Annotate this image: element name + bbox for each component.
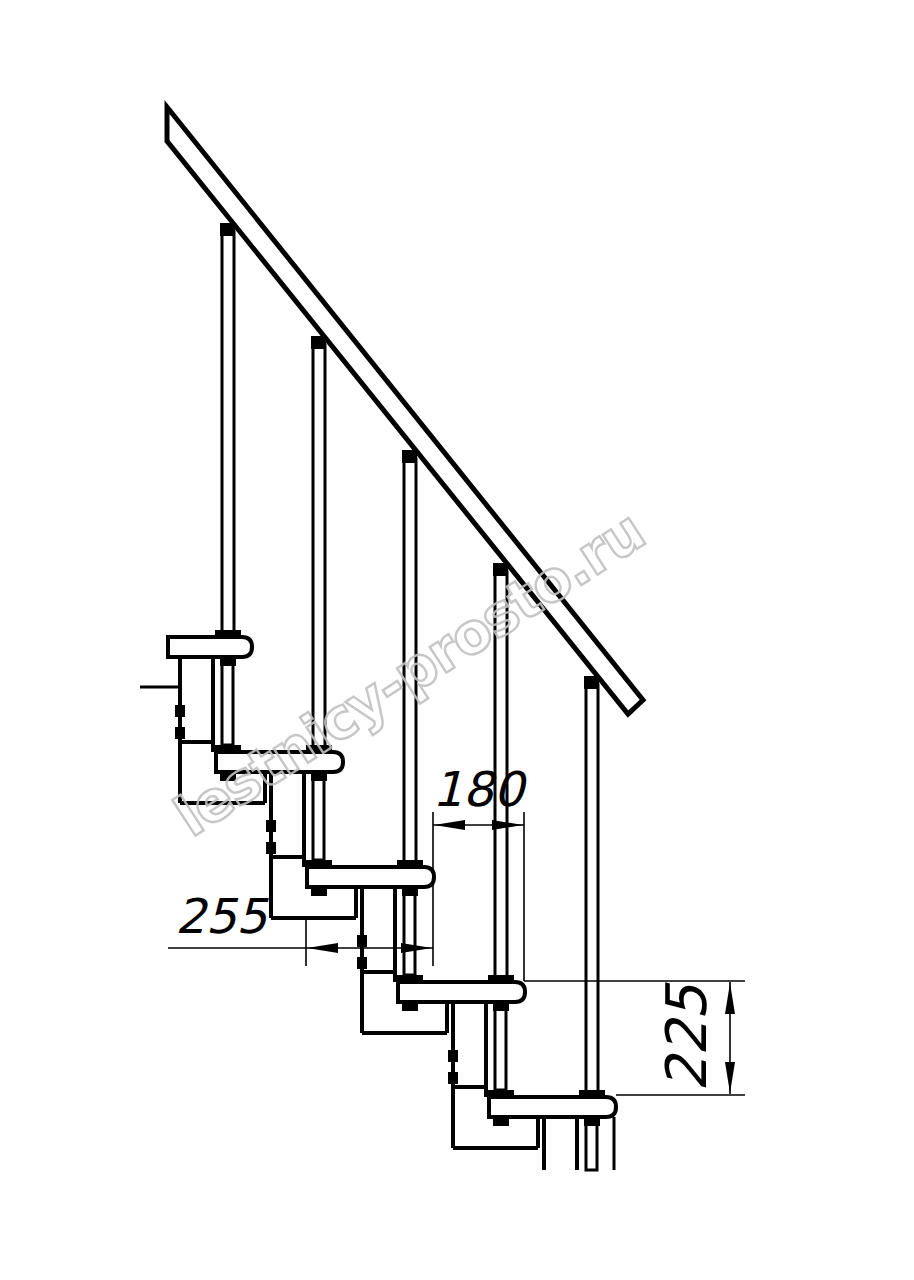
dim-225-arrow-top [725,983,735,1014]
baluster-1-nut-upper [220,658,236,666]
baluster-5-tread-flange [579,1090,605,1097]
module-1-bolt-2 [175,727,185,739]
baluster-2-rail-cap [311,336,326,349]
baluster-1-rail-cap [220,223,235,236]
baluster-2-subrod [313,772,324,860]
dim-225-label: 225 [654,982,719,1091]
baluster-5-rod [586,685,598,1097]
baluster-2-subflange [306,860,332,867]
baluster-3-tread-flange [397,860,423,867]
baluster-1-rod [222,232,234,637]
tread-5 [489,1097,616,1117]
baluster-4-nut-upper [493,1003,509,1011]
baluster-3-nut-upper [402,888,418,896]
module-4-bolt-1 [448,1050,458,1062]
technical-drawing: lestnicy-prosto.ru180255225 [0,0,914,1280]
baluster-5-rail-cap [584,676,599,689]
baluster-4-nut-lower [493,1118,509,1126]
tread-1 [168,637,252,657]
module-4-bolt-2 [448,1072,458,1084]
baluster-3-rail-cap [402,450,417,463]
module-1-bolt-1 [175,705,185,717]
baluster-1-tread-flange [215,630,241,637]
baluster-2-nut-lower [311,888,327,896]
baluster-4-subrod [495,1002,506,1090]
baluster-3-nut-lower [402,1003,418,1011]
baluster-3-subflange [397,975,423,982]
dim-225-arrow-bottom [725,1062,735,1093]
module-2-bolt-1 [266,820,276,832]
baluster-5-nut-upper [584,1118,600,1126]
baluster-4-tread-flange [488,975,514,982]
dim-255-arrow-left [307,943,338,953]
dim-255-label: 255 [175,888,269,944]
dim-180-arrow-left [434,820,465,830]
tread-3 [307,867,434,887]
module-2-bolt-2 [266,842,276,854]
staircase-technical-drawing-page: lestnicy-prosto.ru180255225 [0,0,914,1280]
module-3-bolt-2 [357,957,367,969]
tread-4 [398,982,525,1002]
baluster-4-subflange [488,1090,514,1097]
module-3-bolt-1 [357,935,367,947]
baluster-1-subrod [222,657,233,745]
dim-180-label: 180 [432,761,527,817]
baluster-3-subrod [404,887,415,975]
